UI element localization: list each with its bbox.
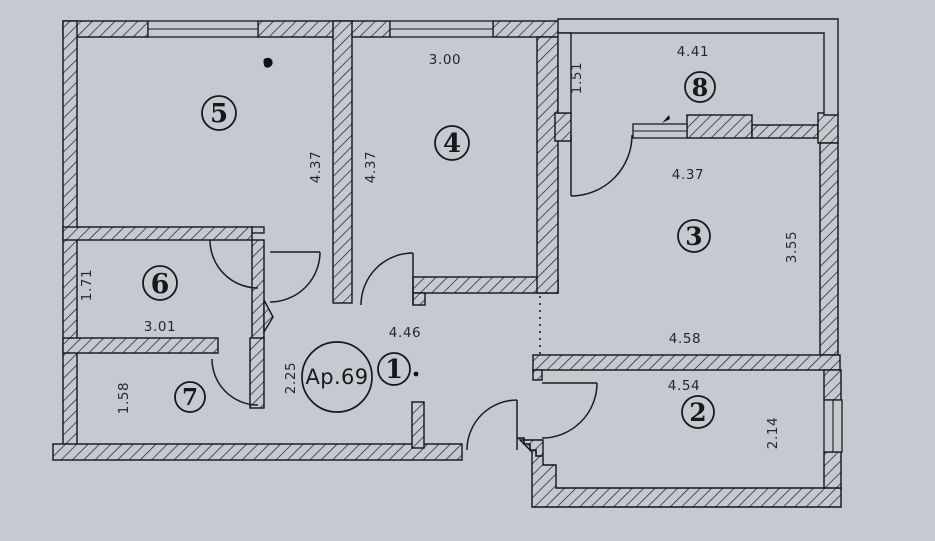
wall-room6-right: [252, 240, 264, 340]
wall-room3-room2: [533, 355, 840, 370]
door-room5-corridor: [270, 252, 320, 302]
wall-room5-room4: [333, 21, 352, 303]
room-marker-2: 2: [682, 396, 714, 428]
wall-balcony-pier: [687, 115, 752, 138]
wall-top-middle: [258, 21, 390, 37]
dim-room4-depth: 4.37: [363, 151, 379, 183]
dim-room7-depth: 1.58: [116, 382, 132, 414]
wall-hall-stub: [412, 402, 424, 448]
walls: [53, 21, 841, 507]
dim-hall-depth: 2.25: [283, 362, 299, 394]
room-marker-7: 7: [175, 382, 205, 412]
wall-room3-right: [820, 143, 838, 355]
door-room6: [210, 240, 258, 288]
door-entrance: [467, 400, 517, 450]
floor-plan: 5 4 8 3 2 6 7 1: [0, 0, 935, 541]
room-number-6: 6: [151, 269, 170, 300]
dim-room2-depth: 2.14: [765, 417, 781, 449]
wall-room4-bottom: [413, 277, 558, 293]
wall-bottom-exterior: [53, 444, 462, 460]
wall-balcony-bottom: [752, 125, 818, 138]
wall-top-right: [493, 21, 560, 37]
wall-room4-right: [537, 37, 558, 293]
wall-room3-room2-lip: [533, 370, 542, 380]
room-marker-4: 4: [435, 126, 469, 160]
dim-room8-width: 4.41: [677, 44, 709, 60]
dim-room8-depth: 1.51: [569, 62, 585, 94]
dim-hall-width: 4.46: [389, 325, 421, 341]
room-number-7: 7: [182, 384, 198, 411]
apartment-label: Ap.69: [305, 365, 368, 389]
ink-blot-room5: [264, 58, 273, 68]
room-marker-1: 1: [378, 353, 410, 385]
apartment-marker: Ap.69: [302, 342, 372, 412]
dim-room3-width-bottom: 4.58: [669, 331, 701, 347]
wall-balcony-door-jamb: [555, 113, 571, 141]
dim-room6-depth: 1.71: [79, 269, 95, 301]
wall-room2-right-bottom: [824, 452, 841, 490]
room-number-3: 3: [685, 222, 702, 251]
scan-artifacts: [264, 58, 671, 377]
room-marker-5: 5: [202, 96, 236, 130]
room-marker-8: 8: [685, 72, 715, 102]
room-marker-3: 3: [678, 220, 710, 252]
room-number-5: 5: [210, 99, 228, 129]
wall-stairwell-and-room2-bottom: [520, 440, 841, 507]
wall-room7-door-jamb: [250, 338, 264, 408]
wall-room5-room6: [63, 227, 252, 240]
wall-room4-bottom-step: [413, 293, 425, 305]
wall-lip-room6: [252, 227, 264, 233]
room-number-8: 8: [692, 73, 709, 102]
wall-room6-room7: [63, 338, 218, 353]
dim-room3-depth: 3.55: [784, 231, 800, 263]
dim-room2-width: 4.54: [668, 378, 700, 394]
dim-room3-width: 4.37: [672, 167, 704, 183]
wall-room6-right-notch: [264, 300, 273, 332]
wall-room2-right-top: [824, 370, 841, 400]
dim-room4-width: 3.00: [429, 52, 461, 68]
dim-room5-depth: 4.37: [308, 151, 324, 183]
room-number-4: 4: [443, 129, 461, 159]
wall-balcony-corner: [818, 113, 838, 143]
door-room8-balcony: [571, 135, 632, 196]
room-number-2: 2: [689, 398, 706, 427]
room-markers: 5 4 8 3 2 6 7 1: [143, 72, 715, 428]
floor-plan-drawing: 5 4 8 3 2 6 7 1: [0, 0, 935, 541]
door-room4: [361, 253, 413, 305]
room-number-1: 1: [385, 355, 403, 385]
room-marker-6: 6: [143, 266, 177, 300]
dim-room6-width: 3.01: [144, 319, 176, 335]
ink-mark-hall: [414, 372, 419, 377]
ink-tick-window: [662, 115, 670, 123]
door-room2: [542, 383, 597, 438]
